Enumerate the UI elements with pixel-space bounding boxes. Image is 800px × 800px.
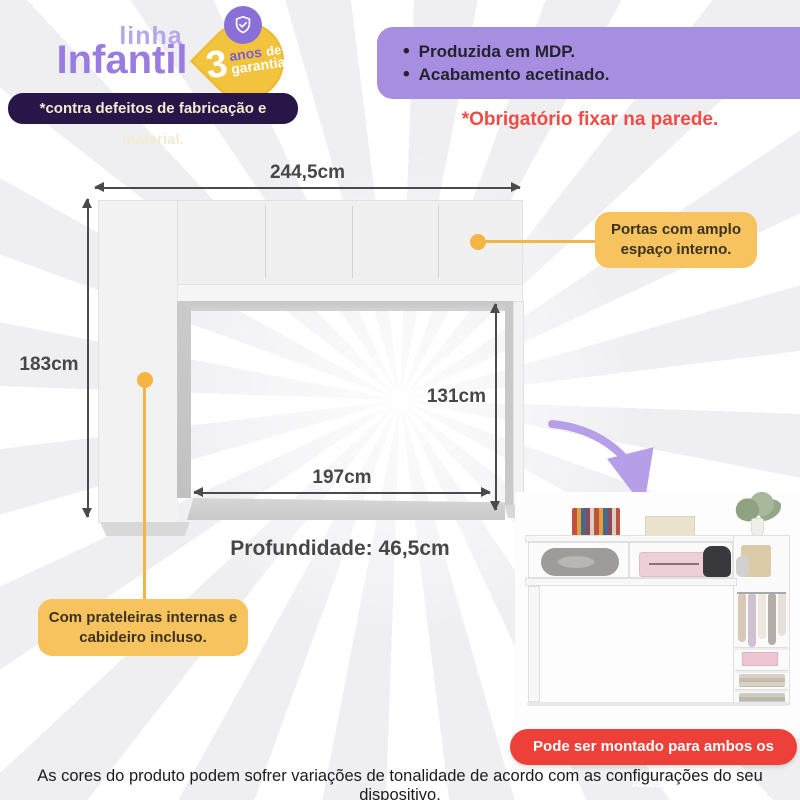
inner-width-label: 197cm xyxy=(194,467,490,489)
wall-fixing-warning: *Obrigatório fixar na parede. xyxy=(390,109,790,131)
warranty-years: 3 xyxy=(203,45,229,86)
inner-width-arrow xyxy=(194,492,490,494)
photo-pink-case-detail xyxy=(649,563,699,565)
feature-item-label: Produzida em MDP. xyxy=(419,42,576,62)
total-width-label: 244,5cm xyxy=(95,162,520,184)
photo-vase xyxy=(751,518,764,536)
photo-shelf-line xyxy=(735,670,788,673)
wardrobe-underside xyxy=(191,301,505,311)
infographic-canvas: linha Infantil 3 anos de garantia *contr… xyxy=(0,0,800,800)
photo-blanket xyxy=(541,548,619,576)
door-seam xyxy=(438,206,439,278)
total-width-arrow xyxy=(95,187,520,189)
photo-shelf-line xyxy=(735,647,788,650)
photo-teddy xyxy=(736,556,749,577)
photo-shelf-line xyxy=(735,689,788,692)
feature-item: • Produzida em MDP. xyxy=(403,42,800,62)
shield-check-icon xyxy=(224,6,262,44)
total-height-arrow xyxy=(87,199,89,517)
photo-backpack xyxy=(703,546,731,577)
inner-height-arrow xyxy=(495,304,497,510)
photo-shelf-board xyxy=(525,578,737,586)
assembly-banner: Pode ser montado para ambos os lados. xyxy=(510,729,797,765)
wardrobe-right-support xyxy=(513,301,524,508)
total-height-label: 183cm xyxy=(18,354,80,376)
wardrobe-left-column xyxy=(98,200,178,523)
feature-item: • Acabamento acetinado. xyxy=(403,65,800,85)
feature-item-label: Acabamento acetinado. xyxy=(419,65,610,85)
inner-height-label: 131cm xyxy=(424,386,486,408)
photo-left-leg xyxy=(528,586,540,702)
photo-storage-box xyxy=(645,516,695,536)
shelves-callout: Com prateleiras internas e cabideiro inc… xyxy=(38,599,248,656)
wardrobe-front-band xyxy=(177,284,523,302)
wardrobe-right-inner-face xyxy=(505,301,513,505)
photo-books xyxy=(572,508,620,536)
doors-callout: Portas com amplo espaço interno. xyxy=(595,212,757,268)
product-photo xyxy=(515,492,800,738)
bullet-icon: • xyxy=(403,65,410,84)
doors-connector-line xyxy=(484,240,597,243)
depth-label: Profundidade: 46,5cm xyxy=(140,537,540,561)
wardrobe-left-inner-face xyxy=(177,301,191,498)
photo-floor-shadow xyxy=(527,702,789,706)
features-box: • Produzida em MDP. • Acabamento acetina… xyxy=(377,27,800,99)
bullet-icon: • xyxy=(403,42,410,61)
door-seam xyxy=(352,206,353,278)
shelves-connector-line xyxy=(143,386,146,601)
warranty-note-banner: *contra defeitos de fabricação e materia… xyxy=(8,93,298,124)
photo-folded-clothes xyxy=(739,674,785,687)
photo-pink-box xyxy=(742,652,778,666)
color-disclaimer: As cores do produto podem sofrer variaçõ… xyxy=(0,767,800,800)
door-seam xyxy=(265,206,266,278)
photo-hanging-clothes xyxy=(738,594,786,648)
